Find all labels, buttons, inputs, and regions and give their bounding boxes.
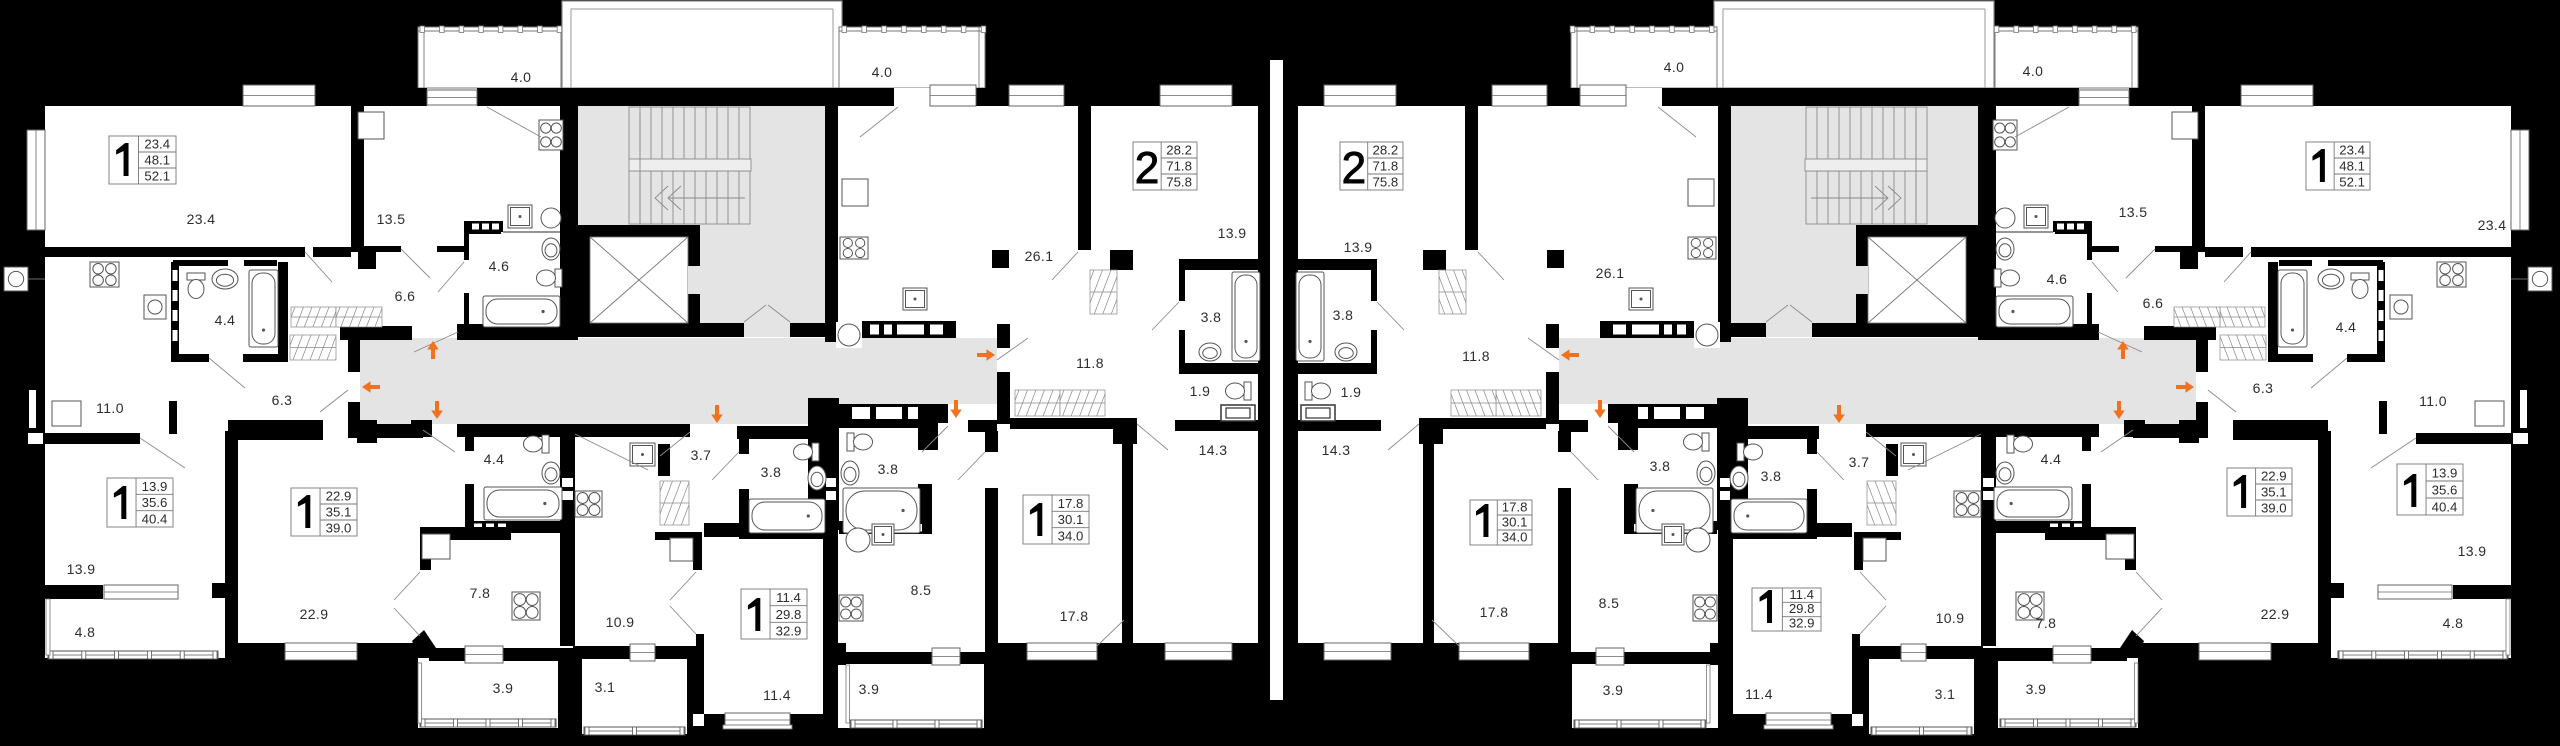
svg-text:29.8: 29.8 bbox=[776, 607, 802, 622]
svg-text:11.8: 11.8 bbox=[1462, 348, 1490, 364]
svg-text:11.0: 11.0 bbox=[2419, 393, 2447, 409]
svg-text:11.4: 11.4 bbox=[776, 590, 801, 605]
svg-text:52.1: 52.1 bbox=[144, 169, 170, 184]
svg-text:11.4: 11.4 bbox=[763, 687, 791, 703]
svg-text:23.4: 23.4 bbox=[2478, 217, 2507, 233]
svg-text:35.1: 35.1 bbox=[326, 505, 352, 520]
svg-text:3.8: 3.8 bbox=[878, 461, 899, 477]
svg-text:39.0: 39.0 bbox=[2261, 501, 2287, 516]
svg-text:29.8: 29.8 bbox=[1789, 601, 1815, 616]
svg-text:6.3: 6.3 bbox=[2253, 380, 2274, 396]
svg-text:4.0: 4.0 bbox=[872, 64, 893, 80]
svg-text:13.9: 13.9 bbox=[1344, 239, 1373, 255]
svg-text:34.0: 34.0 bbox=[1502, 530, 1528, 545]
svg-text:4.6: 4.6 bbox=[489, 258, 510, 274]
svg-text:13.9: 13.9 bbox=[1218, 225, 1247, 241]
svg-text:4.0: 4.0 bbox=[511, 69, 532, 85]
svg-text:11.4: 11.4 bbox=[1789, 587, 1814, 602]
svg-text:10.9: 10.9 bbox=[1936, 610, 1965, 626]
svg-text:3.8: 3.8 bbox=[1761, 468, 1782, 484]
svg-text:40.4: 40.4 bbox=[2432, 500, 2458, 515]
svg-text:14.3: 14.3 bbox=[1322, 442, 1351, 458]
svg-text:3.1: 3.1 bbox=[595, 679, 616, 695]
svg-text:13.9: 13.9 bbox=[2432, 466, 2458, 481]
svg-text:10.9: 10.9 bbox=[606, 614, 635, 630]
svg-text:4.8: 4.8 bbox=[2443, 615, 2464, 631]
svg-text:7.8: 7.8 bbox=[470, 585, 491, 601]
svg-text:4.6: 4.6 bbox=[2047, 271, 2068, 287]
svg-text:32.9: 32.9 bbox=[776, 624, 802, 639]
svg-text:40.4: 40.4 bbox=[142, 512, 168, 527]
svg-text:13.5: 13.5 bbox=[2119, 204, 2148, 220]
svg-text:30.1: 30.1 bbox=[1502, 515, 1528, 530]
svg-text:48.1: 48.1 bbox=[144, 153, 170, 168]
svg-text:28.2: 28.2 bbox=[1373, 143, 1399, 158]
svg-text:75.8: 75.8 bbox=[1373, 175, 1399, 190]
svg-text:30.1: 30.1 bbox=[1058, 512, 1084, 527]
svg-text:48.1: 48.1 bbox=[2339, 159, 2365, 174]
svg-text:3.9: 3.9 bbox=[493, 680, 514, 696]
svg-text:3.8: 3.8 bbox=[1201, 309, 1222, 325]
svg-text:7.8: 7.8 bbox=[2036, 615, 2057, 631]
svg-text:13.5: 13.5 bbox=[377, 211, 406, 227]
svg-text:13.9: 13.9 bbox=[142, 479, 168, 494]
svg-text:39.0: 39.0 bbox=[326, 521, 352, 536]
svg-text:17.8: 17.8 bbox=[1058, 496, 1084, 511]
svg-text:1.9: 1.9 bbox=[1190, 383, 1211, 399]
svg-text:3.9: 3.9 bbox=[2026, 681, 2047, 697]
svg-text:4.0: 4.0 bbox=[2023, 63, 2044, 79]
svg-text:8.5: 8.5 bbox=[911, 582, 932, 598]
svg-text:1.9: 1.9 bbox=[1341, 384, 1362, 400]
svg-text:26.1: 26.1 bbox=[1596, 265, 1625, 281]
svg-text:3.9: 3.9 bbox=[1603, 682, 1624, 698]
svg-text:11.4: 11.4 bbox=[1745, 686, 1773, 702]
svg-text:6.6: 6.6 bbox=[395, 288, 416, 304]
svg-text:71.8: 71.8 bbox=[1166, 159, 1192, 174]
svg-text:13.9: 13.9 bbox=[67, 561, 96, 577]
svg-text:4.4: 4.4 bbox=[215, 312, 236, 328]
svg-text:13.9: 13.9 bbox=[2458, 543, 2487, 559]
svg-text:4.0: 4.0 bbox=[1664, 59, 1685, 75]
svg-text:8.5: 8.5 bbox=[1599, 595, 1620, 611]
svg-text:2: 2 bbox=[1135, 144, 1160, 193]
svg-text:26.1: 26.1 bbox=[1025, 248, 1054, 264]
svg-text:3.7: 3.7 bbox=[691, 447, 712, 463]
svg-text:35.6: 35.6 bbox=[142, 495, 168, 510]
svg-text:23.4: 23.4 bbox=[187, 211, 216, 227]
svg-text:11.8: 11.8 bbox=[1076, 355, 1104, 371]
svg-text:22.9: 22.9 bbox=[326, 489, 352, 504]
svg-text:71.8: 71.8 bbox=[1373, 159, 1399, 174]
svg-text:3.7: 3.7 bbox=[1849, 454, 1870, 470]
svg-text:28.2: 28.2 bbox=[1166, 143, 1192, 158]
svg-text:3.8: 3.8 bbox=[761, 464, 782, 480]
svg-text:14.3: 14.3 bbox=[1199, 442, 1228, 458]
svg-text:35.6: 35.6 bbox=[2432, 483, 2458, 498]
svg-text:23.4: 23.4 bbox=[2339, 143, 2365, 158]
svg-text:35.1: 35.1 bbox=[2261, 485, 2287, 500]
svg-text:52.1: 52.1 bbox=[2339, 175, 2365, 190]
svg-text:23.4: 23.4 bbox=[144, 137, 170, 152]
svg-text:4.4: 4.4 bbox=[2041, 451, 2062, 467]
svg-text:4.4: 4.4 bbox=[484, 451, 505, 467]
svg-text:17.8: 17.8 bbox=[1502, 500, 1528, 515]
svg-text:3.9: 3.9 bbox=[859, 681, 880, 697]
svg-text:32.9: 32.9 bbox=[1789, 616, 1815, 631]
svg-text:3.1: 3.1 bbox=[1935, 686, 1956, 702]
svg-text:17.8: 17.8 bbox=[1060, 608, 1089, 624]
svg-text:3.8: 3.8 bbox=[1650, 458, 1671, 474]
svg-text:2: 2 bbox=[1342, 144, 1367, 193]
svg-text:34.0: 34.0 bbox=[1058, 529, 1084, 544]
svg-text:22.9: 22.9 bbox=[300, 606, 329, 622]
svg-text:4.8: 4.8 bbox=[75, 624, 96, 640]
svg-text:6.6: 6.6 bbox=[2143, 295, 2164, 311]
svg-text:75.8: 75.8 bbox=[1166, 175, 1192, 190]
svg-text:22.9: 22.9 bbox=[2261, 469, 2287, 484]
svg-text:4.4: 4.4 bbox=[2336, 319, 2357, 335]
svg-text:3.8: 3.8 bbox=[1333, 307, 1354, 323]
svg-text:11.0: 11.0 bbox=[96, 400, 124, 416]
svg-text:17.8: 17.8 bbox=[1480, 604, 1509, 620]
svg-text:22.9: 22.9 bbox=[2261, 606, 2290, 622]
svg-text:6.3: 6.3 bbox=[272, 392, 293, 408]
